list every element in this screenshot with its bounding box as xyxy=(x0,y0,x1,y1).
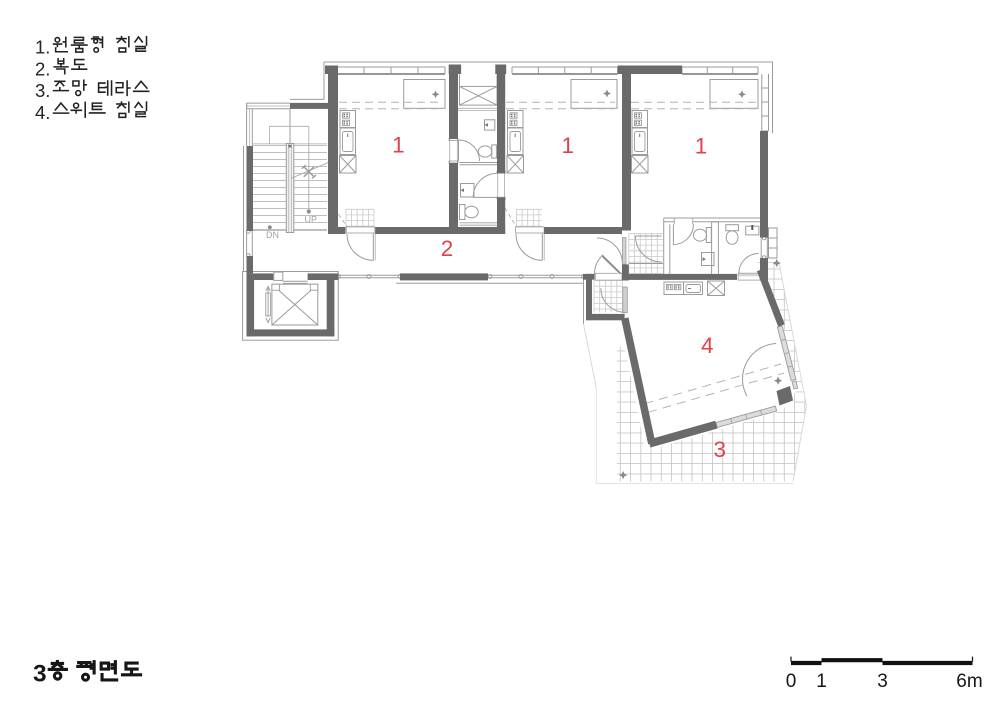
svg-text:UP: UP xyxy=(305,215,318,225)
svg-text:2.: 2. xyxy=(35,58,50,79)
svg-text:1: 1 xyxy=(816,671,827,692)
svg-text:4: 4 xyxy=(701,333,714,358)
svg-text:3: 3 xyxy=(33,661,47,688)
svg-text:6m: 6m xyxy=(956,671,982,692)
svg-text:DN: DN xyxy=(266,230,279,240)
svg-text:1: 1 xyxy=(392,132,405,157)
svg-text:0: 0 xyxy=(786,671,797,692)
svg-text:1: 1 xyxy=(695,134,708,159)
svg-text:2: 2 xyxy=(441,236,454,261)
svg-text:3: 3 xyxy=(877,671,888,692)
svg-text:1.: 1. xyxy=(35,37,50,58)
svg-text:3: 3 xyxy=(713,437,726,462)
svg-text:3.: 3. xyxy=(35,80,50,101)
svg-text:4.: 4. xyxy=(35,102,50,123)
svg-text:1: 1 xyxy=(561,133,574,158)
